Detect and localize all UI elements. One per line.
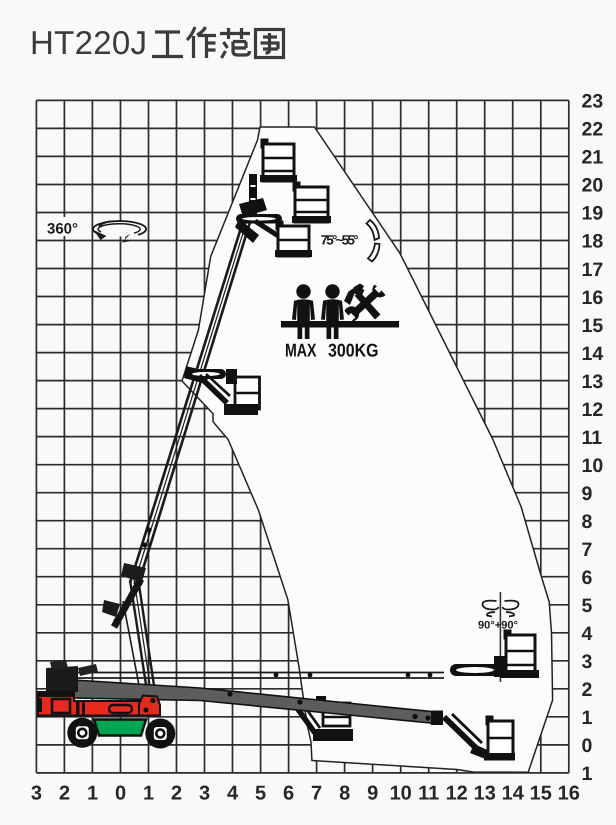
svg-text:8: 8 — [339, 783, 350, 805]
svg-text:15: 15 — [530, 783, 552, 805]
svg-text:0: 0 — [582, 735, 593, 757]
svg-text:13: 13 — [474, 783, 496, 805]
svg-text:2: 2 — [59, 783, 70, 805]
svg-text:3: 3 — [199, 783, 210, 805]
svg-text:12: 12 — [582, 399, 604, 421]
svg-text:17: 17 — [582, 259, 604, 281]
svg-text:9: 9 — [367, 783, 378, 805]
svg-text:16: 16 — [582, 287, 604, 309]
svg-text:20: 20 — [582, 175, 604, 197]
svg-text:300KG: 300KG — [328, 340, 379, 361]
svg-text:MAX: MAX — [285, 340, 317, 361]
svg-text:7: 7 — [311, 783, 322, 805]
svg-text:6: 6 — [582, 567, 593, 589]
svg-text:4: 4 — [582, 623, 593, 645]
svg-text:2: 2 — [582, 679, 593, 701]
svg-text:360°: 360° — [47, 221, 78, 238]
svg-text:7: 7 — [582, 539, 593, 561]
svg-text:8: 8 — [582, 511, 593, 533]
svg-text:19: 19 — [582, 203, 604, 225]
svg-text:15: 15 — [582, 315, 604, 337]
svg-text:3: 3 — [31, 783, 42, 805]
svg-text:16: 16 — [558, 783, 580, 805]
svg-text:13: 13 — [582, 371, 604, 393]
svg-text:0: 0 — [115, 783, 126, 805]
svg-text:10: 10 — [582, 455, 604, 477]
svg-text:14: 14 — [582, 343, 604, 365]
svg-text:5: 5 — [582, 595, 593, 617]
svg-text:HT220J: HT220J — [30, 24, 147, 61]
svg-text:5: 5 — [255, 783, 266, 805]
svg-text:1: 1 — [143, 783, 154, 805]
svg-text:22: 22 — [582, 119, 604, 141]
svg-text:21: 21 — [582, 147, 604, 169]
svg-text:1: 1 — [582, 763, 593, 785]
svg-text:9: 9 — [582, 483, 593, 505]
svg-text:75°~55°: 75°~55° — [321, 233, 359, 248]
svg-text:1: 1 — [582, 707, 593, 729]
svg-text:6: 6 — [283, 783, 294, 805]
svg-text:23: 23 — [582, 91, 604, 113]
svg-text:2: 2 — [171, 783, 182, 805]
svg-text:10: 10 — [390, 783, 412, 805]
svg-text:3: 3 — [582, 651, 593, 673]
svg-text:12: 12 — [446, 783, 468, 805]
svg-text:18: 18 — [582, 231, 604, 253]
svg-text:1: 1 — [87, 783, 98, 805]
svg-text:90°+90°: 90°+90° — [478, 620, 518, 632]
svg-text:4: 4 — [227, 783, 239, 805]
svg-text:11: 11 — [418, 783, 439, 805]
svg-text:14: 14 — [502, 783, 525, 805]
svg-text:11: 11 — [582, 427, 603, 449]
